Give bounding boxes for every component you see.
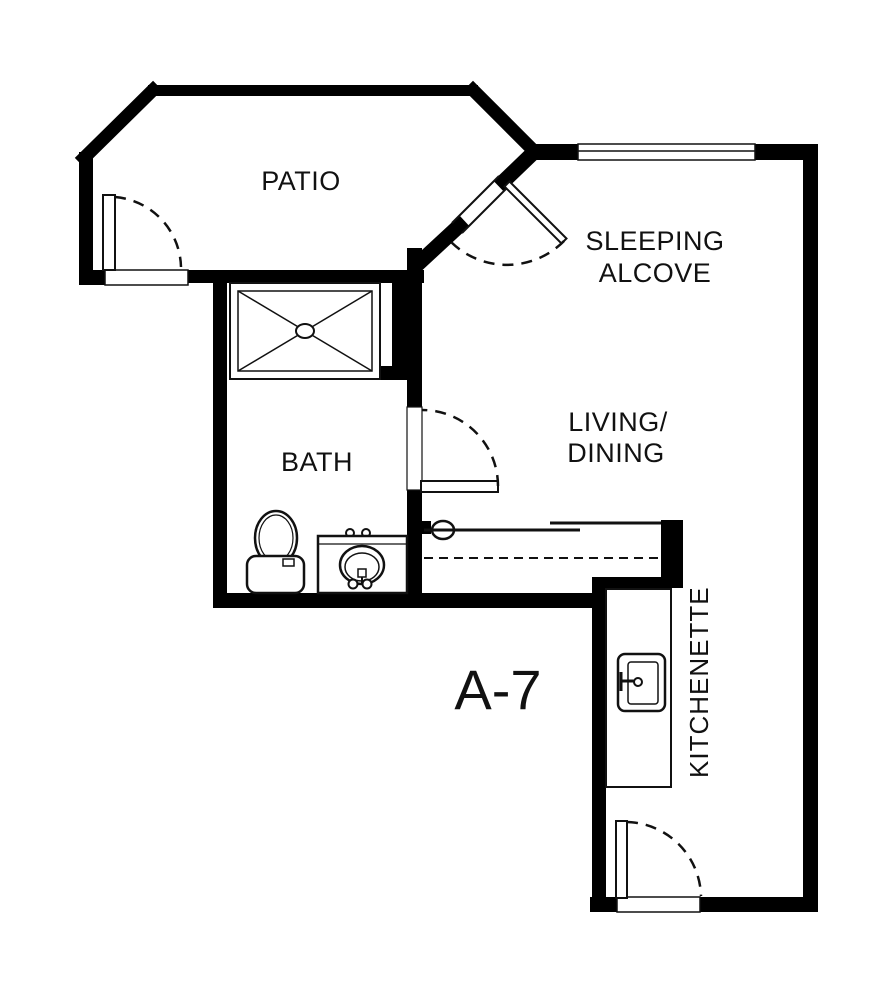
- floor-plan-drawing: PATIO SLEEPING ALCOVE LIVING/ DINING BAT…: [0, 0, 895, 998]
- bath-bottom-wall: [213, 593, 592, 608]
- right-exterior-wall: [803, 144, 818, 912]
- sink-tap-right: [363, 580, 372, 589]
- door-track-nub: [422, 521, 431, 534]
- vanity-sink-icon: [318, 529, 407, 593]
- patio-label: PATIO: [261, 166, 341, 196]
- living-dining-label-line1: LIVING/: [568, 407, 668, 437]
- living-dining-label-line2: DINING: [567, 438, 665, 468]
- window-frame: [578, 144, 755, 160]
- alcove-door-opening-edge-2: [462, 186, 509, 233]
- bypass-doors-icon: [422, 521, 661, 558]
- alcove-window: [578, 144, 755, 160]
- bath-door-leaf: [421, 481, 498, 492]
- toilet-icon: [247, 511, 304, 593]
- sleeping-alcove-label-line2: ALCOVE: [599, 258, 712, 288]
- shower-partition-wall: [392, 270, 407, 380]
- patio-left-wall: [79, 152, 93, 285]
- patio-door-leaf: [103, 195, 115, 270]
- sleeping-alcove-label-line1: SLEEPING: [585, 226, 724, 256]
- bottom-wall-left-of-entry: [590, 897, 617, 912]
- entry-door-threshold: [617, 897, 700, 912]
- patio-door-threshold: [105, 270, 188, 285]
- shower-drain: [296, 324, 314, 338]
- kitchenette-left-wall: [592, 577, 606, 907]
- sink-faucet-base: [358, 569, 366, 577]
- toilet-flush-detail: [283, 559, 294, 566]
- patio-topleft-diagonal-wall: [84, 90, 153, 158]
- patio-bottom-wall-left-stub: [79, 270, 105, 285]
- alcove-door-swing-arc: [450, 241, 564, 265]
- closet-stub-wall: [661, 520, 683, 588]
- toilet-tank: [247, 556, 304, 593]
- kitchen-faucet-spout: [634, 678, 642, 686]
- bath-door: [407, 407, 498, 492]
- bath-label: BATH: [281, 447, 353, 477]
- bath-right-wall-lower: [407, 490, 422, 608]
- bath-door-swing-arc: [422, 410, 498, 486]
- kitchen-counter-icon: [606, 589, 671, 787]
- floor-plan-page: PATIO SLEEPING ALCOVE LIVING/ DINING BAT…: [0, 0, 895, 998]
- alcove-door-leaf: [505, 182, 567, 244]
- patio-top-wall: [148, 85, 478, 96]
- kitchenette-top-wall: [592, 577, 663, 589]
- patio-topright-diagonal-wall: [473, 90, 534, 151]
- patio-door-swing-arc: [115, 197, 181, 267]
- kitchenette-label: KITCHENETTE: [684, 586, 714, 778]
- unit-number-label: A-7: [454, 658, 541, 721]
- sink-tap-left: [349, 580, 358, 589]
- bath-door-opening: [407, 407, 422, 490]
- walls: [79, 85, 818, 912]
- alcove-diagonal-wall-upper: [504, 155, 531, 181]
- alcove-door: [450, 176, 567, 265]
- bath-left-wall: [213, 270, 227, 608]
- bath-right-wall-upper: [407, 248, 422, 407]
- entry-door-leaf: [616, 821, 627, 898]
- entry-door: [616, 821, 701, 912]
- bottom-wall-right-of-entry: [700, 897, 818, 912]
- shower-icon: [230, 283, 380, 379]
- alcove-door-opening-edge-1: [452, 176, 499, 223]
- entry-door-swing-arc: [627, 822, 701, 896]
